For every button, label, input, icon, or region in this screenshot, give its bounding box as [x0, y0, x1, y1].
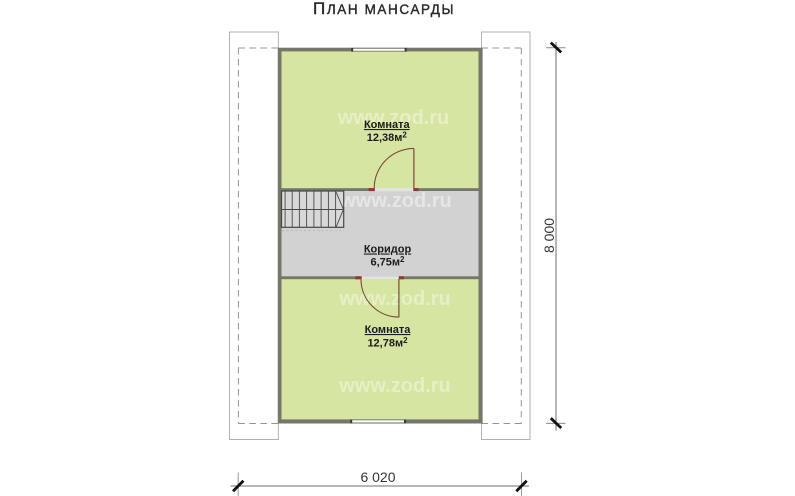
- svg-text:ПЛАН МАНСАРДЫ: ПЛАН МАНСАРДЫ: [313, 0, 455, 18]
- svg-text:www.zod.ru: www.zod.ru: [338, 375, 450, 397]
- svg-text:www.zod.ru: www.zod.ru: [339, 190, 451, 212]
- svg-text:12,38м2: 12,38м2: [367, 131, 408, 145]
- svg-text:6 020: 6 020: [360, 469, 395, 485]
- svg-text:12,78м2: 12,78м2: [367, 336, 408, 350]
- svg-text:Коридор: Коридор: [364, 244, 412, 256]
- svg-text:Комната: Комната: [364, 119, 411, 131]
- svg-text:8 000: 8 000: [541, 218, 557, 253]
- svg-text:Комната: Комната: [365, 324, 412, 336]
- svg-text:6,75м2: 6,75м2: [371, 255, 406, 269]
- svg-text:www.zod.ru: www.zod.ru: [338, 288, 450, 310]
